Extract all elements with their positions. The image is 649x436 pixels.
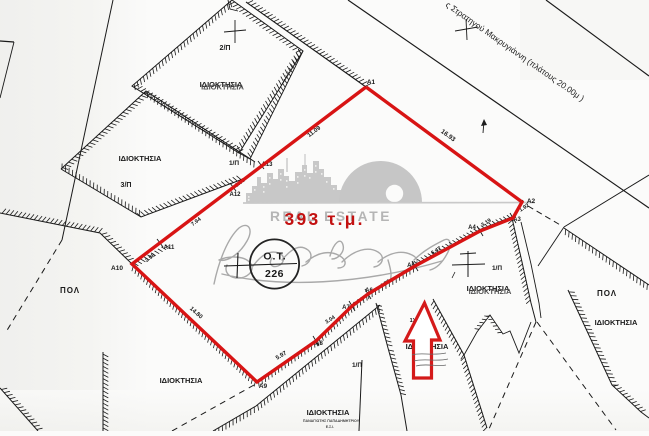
svg-text:A10: A10 (111, 265, 123, 272)
svg-text:A2: A2 (527, 198, 536, 205)
svg-text:ΠΑΝΑΓΙΩΤΗΣ ΠΑΠΑΔΗΜΗΤΡΙΟΥ: ΠΑΝΑΓΙΩΤΗΣ ΠΑΠΑΔΗΜΗΤΡΙΟΥ (303, 419, 360, 423)
svg-text:A1: A1 (367, 79, 376, 86)
svg-text:ΙΔΙΟΚΤΗΣΙΑ: ΙΔΙΟΚΤΗΣΙΑ (307, 408, 350, 417)
svg-text:Ο.Τ.: Ο.Τ. (263, 251, 286, 263)
svg-text:2/Π: 2/Π (220, 45, 231, 52)
svg-text:1/Π: 1/Π (229, 160, 239, 167)
svg-text:ΠΟΛ: ΠΟΛ (597, 289, 617, 298)
svg-text:ΙΔΙΟΚΤΗΣΙΑ: ΙΔΙΟΚΤΗΣΙΑ (595, 318, 638, 327)
svg-text:3/Π: 3/Π (121, 182, 132, 189)
svg-text:ΙΔΙΟΚΤΗΣΙΑ: ΙΔΙΟΚΤΗΣΙΑ (119, 154, 162, 163)
svg-text:1/Π: 1/Π (352, 362, 362, 369)
svg-text:A9: A9 (259, 383, 268, 390)
svg-text:ΙΔΙΟΚΤΗΣΙΑ: ΙΔΙΟΚΤΗΣΙΑ (201, 83, 244, 92)
svg-text:ΙΔΙΟΚΤΗΣΙΑ: ΙΔΙΟΚΤΗΣΙΑ (160, 376, 203, 385)
svg-text:Ε.Σ.Ι.: Ε.Σ.Ι. (326, 425, 335, 429)
svg-text:393 τ.μ.: 393 τ.μ. (285, 209, 365, 229)
svg-text:A12: A12 (229, 192, 241, 198)
svg-text:ΠΟΛ: ΠΟΛ (60, 286, 80, 295)
svg-text:A11: A11 (164, 245, 175, 251)
svg-text:ΙΔΙΟΚΤΗΣΙΑ: ΙΔΙΟΚΤΗΣΙΑ (469, 287, 512, 296)
svg-text:226: 226 (265, 268, 284, 280)
svg-text:1/Π: 1/Π (492, 265, 502, 272)
